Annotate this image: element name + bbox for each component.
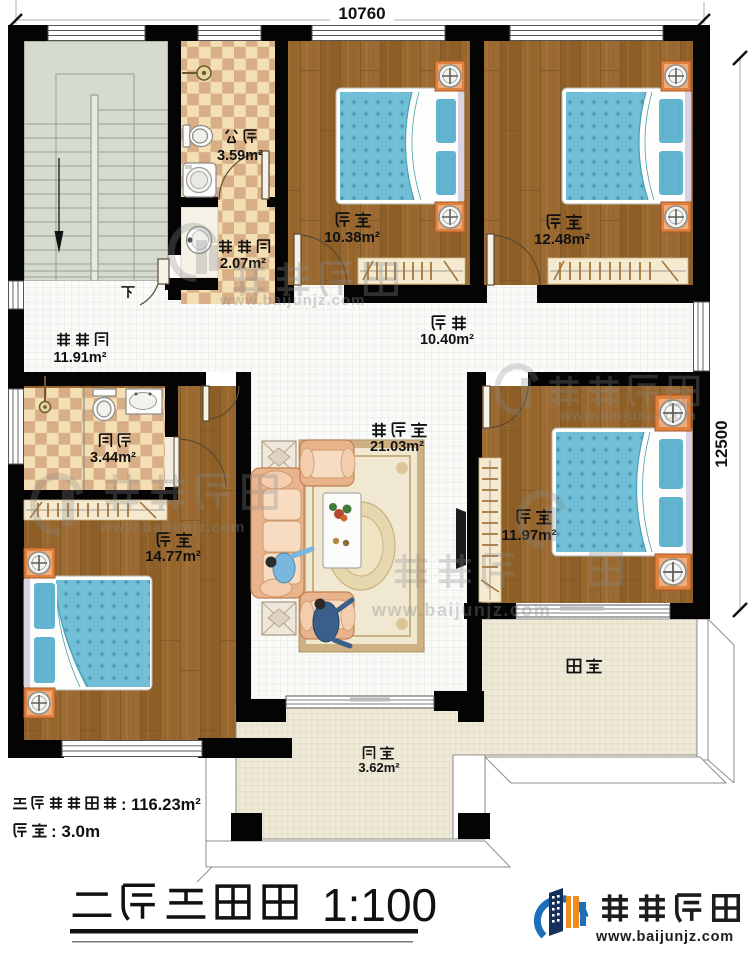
svg-text:12.48m²: 12.48m²	[534, 231, 590, 248]
svg-text:3.44m²: 3.44m²	[90, 450, 136, 466]
svg-text:11.91m²: 11.91m²	[53, 350, 106, 366]
svg-text:www.baijunjz.com: www.baijunjz.com	[559, 407, 697, 423]
svg-text:www.baijunjz.com: www.baijunjz.com	[219, 292, 365, 309]
svg-text:: 116.23m²: : 116.23m²	[121, 796, 201, 814]
svg-text:www.baijunjz.com: www.baijunjz.com	[595, 929, 734, 945]
svg-text:21.03m²: 21.03m²	[370, 439, 424, 455]
svg-text:www.baijunjz.com: www.baijunjz.com	[99, 519, 245, 536]
svg-text:10.38m²: 10.38m²	[324, 229, 380, 246]
svg-text:12500: 12500	[712, 420, 731, 467]
svg-text:3.59m²: 3.59m²	[217, 148, 263, 164]
svg-text:3.62m²: 3.62m²	[358, 760, 400, 775]
svg-text:14.77m²: 14.77m²	[145, 548, 201, 565]
svg-text:10.40m²: 10.40m²	[420, 332, 474, 348]
svg-text:www.baijunjz.com: www.baijunjz.com	[371, 600, 551, 620]
svg-text:1:100: 1:100	[322, 879, 437, 931]
svg-text:: 3.0m: : 3.0m	[51, 822, 100, 841]
svg-text:10760: 10760	[338, 4, 385, 23]
